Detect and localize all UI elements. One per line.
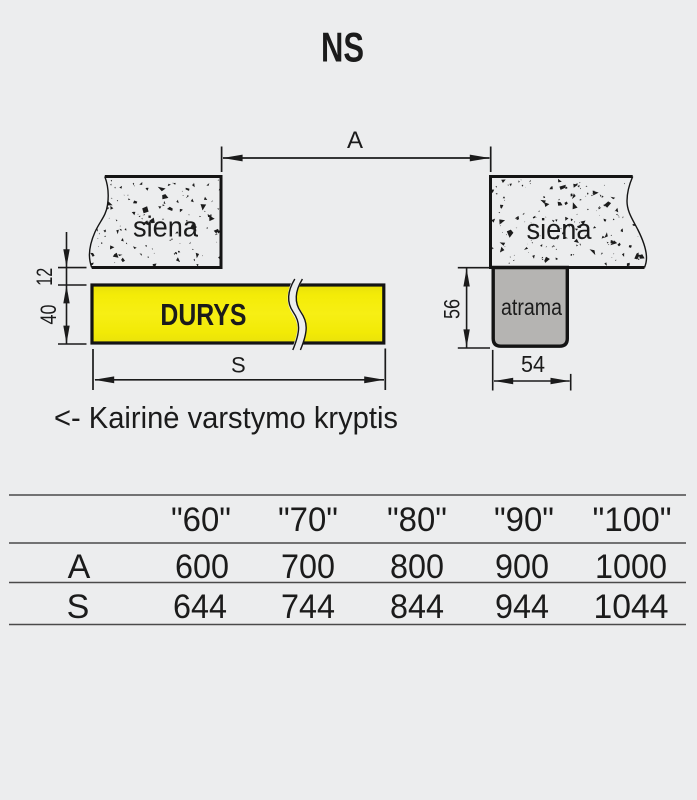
svg-text:800: 800: [390, 548, 444, 586]
svg-text:"70": "70": [278, 501, 338, 539]
svg-text:A: A: [347, 127, 363, 154]
svg-text:"60": "60": [171, 501, 231, 539]
svg-text:"100": "100": [593, 501, 672, 539]
svg-text:900: 900: [495, 548, 549, 586]
svg-text:"90": "90": [494, 501, 554, 539]
svg-text:744: 744: [281, 588, 335, 626]
svg-text:40: 40: [36, 305, 61, 325]
svg-text:"80": "80": [387, 501, 447, 539]
svg-text:S: S: [67, 588, 90, 626]
svg-text:56: 56: [439, 299, 464, 319]
svg-text:944: 944: [495, 588, 549, 626]
svg-text:S: S: [231, 353, 246, 378]
svg-text:atrama: atrama: [501, 294, 562, 320]
svg-text:644: 644: [173, 588, 227, 626]
svg-text:<- Kairinė varstymo kryptis: <- Kairinė varstymo kryptis: [54, 400, 398, 435]
svg-text:NS: NS: [321, 24, 364, 71]
svg-text:siena: siena: [133, 212, 198, 244]
svg-text:1044: 1044: [594, 588, 669, 626]
svg-text:600: 600: [175, 548, 229, 586]
svg-text:54: 54: [521, 351, 545, 377]
svg-text:844: 844: [390, 588, 444, 626]
svg-text:A: A: [68, 548, 91, 586]
svg-text:siena: siena: [527, 214, 592, 246]
svg-text:DURYS: DURYS: [160, 297, 246, 332]
svg-text:12: 12: [32, 268, 57, 286]
svg-text:1000: 1000: [595, 548, 667, 586]
svg-text:700: 700: [281, 548, 335, 586]
